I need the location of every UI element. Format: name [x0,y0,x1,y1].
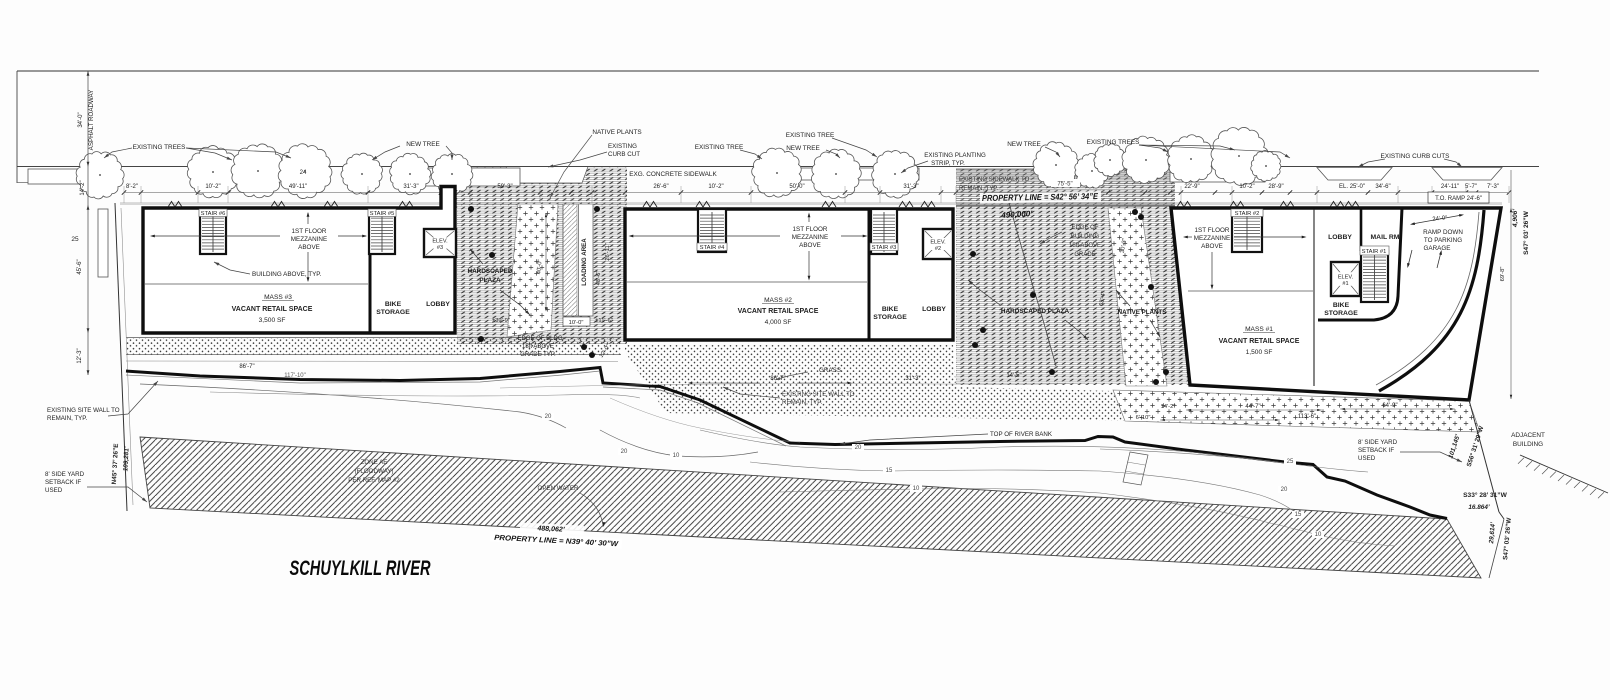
svg-text:40'-0": 40'-0" [536,259,543,274]
svg-text:49'-11": 49'-11" [289,184,307,190]
svg-text:7'-3": 7'-3" [1487,184,1499,190]
svg-text:LOBBY: LOBBY [922,306,946,313]
svg-text:24: 24 [300,170,307,176]
svg-text:14'-2": 14'-2" [1161,404,1176,410]
svg-text:GRADE: GRADE [1074,252,1095,258]
svg-text:22'-9": 22'-9" [1184,184,1199,190]
svg-text:GRASS: GRASS [819,367,841,374]
svg-text:EXISTING PLANTING: EXISTING PLANTING [924,152,986,159]
svg-text:EDGE OF BLDG: EDGE OF BLDG [517,336,562,342]
svg-text:BIKE: BIKE [882,306,899,313]
svg-text:NEW TREE: NEW TREE [406,141,440,148]
svg-text:MASS #1: MASS #1 [1245,326,1273,333]
svg-text:HARDSCAPED: HARDSCAPED [467,268,512,275]
svg-text:EXISTING TREE: EXISTING TREE [695,144,744,151]
svg-text:(FLOODWAY): (FLOODWAY) [355,468,394,475]
svg-text:117'-10": 117'-10" [284,373,306,379]
svg-text:25: 25 [1287,459,1294,465]
svg-text:GRADE TYP.: GRADE TYP. [520,352,556,358]
svg-text:PER REF. MAP #2: PER REF. MAP #2 [348,477,400,484]
svg-text:12'-3": 12'-3" [77,348,83,363]
svg-text:LOBBY: LOBBY [426,301,450,308]
svg-text:EXISTING SITE WALL TO: EXISTING SITE WALL TO [782,391,855,398]
svg-text:31'-3": 31'-3" [905,376,920,382]
svg-text:75'-5": 75'-5" [1057,182,1072,188]
svg-text:PROPERTY LINE = S42° 56’ 34”: PROPERTY LINE = S42° 56’ 34”E [982,191,1098,203]
svg-text:PLAZA: PLAZA [479,277,501,284]
svg-text:#2: #2 [935,246,941,252]
svg-text:TO PARKING: TO PARKING [1424,237,1462,244]
svg-text:1ST FLOOR: 1ST FLOOR [1195,227,1230,234]
svg-text:10: 10 [913,486,920,492]
svg-text:STORAGE: STORAGE [873,314,907,321]
svg-text:MAIL RM: MAIL RM [1371,234,1400,241]
svg-text:STAIR #6: STAIR #6 [201,211,226,217]
svg-text:T.O. RAMP 24'-6": T.O. RAMP 24'-6" [1435,196,1482,202]
svg-text:STAIR #1: STAIR #1 [1362,249,1387,255]
svg-text:REMAIN, TYP.: REMAIN, TYP. [959,186,998,192]
svg-text:59'-3": 59'-3" [497,184,512,190]
svg-text:10'-2": 10'-2" [708,184,723,190]
svg-text:4,906’: 4,906’ [1512,209,1519,229]
svg-text:18ft ABOVE: 18ft ABOVE [1069,243,1101,249]
svg-text:ELEV.: ELEV. [432,239,448,245]
svg-text:NATIVE PLANTS: NATIVE PLANTS [592,129,641,136]
svg-text:10'-2": 10'-2" [1239,184,1254,190]
svg-text:20: 20 [621,449,628,455]
svg-text:EXISTING TREES: EXISTING TREES [133,144,186,151]
svg-text:490,000’: 490,000’ [1000,209,1033,220]
svg-text:34'-6": 34'-6" [1375,184,1390,190]
svg-text:STORAGE: STORAGE [1324,310,1358,317]
svg-text:25: 25 [71,236,79,243]
svg-text:10: 10 [1315,532,1322,538]
svg-text:VACANT RETAIL SPACE: VACANT RETAIL SPACE [1219,338,1300,345]
svg-text:8' SIDE YARD: 8' SIDE YARD [1358,439,1398,446]
svg-text:TOP OF RIVER BANK: TOP OF RIVER BANK [990,431,1053,438]
svg-text:BUILDING: BUILDING [1513,441,1543,448]
svg-text:64'-9": 64'-9" [1382,403,1397,409]
svg-text:STAIR #2: STAIR #2 [1235,211,1260,217]
svg-text:MEZZANINE: MEZZANINE [792,234,828,241]
svg-text:SETBACK IF: SETBACK IF [45,479,81,486]
svg-text:LOBBY: LOBBY [1328,234,1352,241]
svg-text:18ft ABOVE: 18ft ABOVE [522,344,554,350]
svg-text:RAMP DOWN: RAMP DOWN [1423,229,1463,236]
svg-text:REMAIN, TYP.: REMAIN, TYP. [47,415,88,422]
svg-text:MEZZANINE: MEZZANINE [291,236,327,243]
svg-text:S47° 03’ 26”W: S47° 03’ 26”W [1522,210,1530,254]
svg-text:ASPHALT ROADWAY: ASPHALT ROADWAY [88,90,95,151]
svg-text:14'-2": 14'-2" [80,180,86,195]
svg-text:ADJACENT: ADJACENT [1511,432,1545,439]
svg-text:REMAIN, TYP.: REMAIN, TYP. [782,399,823,406]
svg-text:1,500 SF: 1,500 SF [1246,349,1273,356]
svg-text:26'-6": 26'-6" [653,184,668,190]
svg-text:SCHUYLKILL RIVER: SCHUYLKILL RIVER [290,557,432,580]
svg-text:6'-10": 6'-10" [1136,415,1151,421]
svg-text:±39'-9": ±39'-9" [492,318,510,324]
svg-text:34'-0": 34'-0" [78,112,84,127]
svg-text:113'-6": 113'-6" [1298,414,1316,420]
svg-text:VACANT RETAIL SPACE: VACANT RETAIL SPACE [232,306,313,313]
svg-text:VACANT RETAIL SPACE: VACANT RETAIL SPACE [738,308,819,315]
svg-text:ABOVE: ABOVE [799,242,821,249]
svg-text:28'-9": 28'-9" [1268,184,1283,190]
svg-text:BIKE: BIKE [1333,302,1350,309]
svg-text:BUILDING: BUILDING [1071,234,1100,240]
svg-text:48'-6": 48'-6" [596,271,602,286]
svg-text:26'-11": 26'-11" [605,243,611,261]
svg-text:NEW TREE: NEW TREE [786,145,820,152]
svg-text:EXISTING TREE: EXISTING TREE [786,132,835,139]
svg-text:109,281’: 109,281’ [122,446,130,471]
svg-text:50'-0": 50'-0" [789,184,804,190]
svg-text:HARDSCAPED PLAZA: HARDSCAPED PLAZA [1001,308,1070,315]
svg-text:ZONE AE: ZONE AE [361,459,388,466]
svg-text:15: 15 [1295,512,1302,518]
svg-text:MEZZANINE: MEZZANINE [1194,235,1230,242]
svg-text:STAIR #4: STAIR #4 [700,245,725,251]
svg-text:EXISTING SIDEWALK TO: EXISTING SIDEWALK TO [959,177,1030,183]
svg-text:20: 20 [545,414,552,420]
svg-text:20: 20 [1281,487,1288,493]
svg-text:EXISTING TREES: EXISTING TREES [1087,139,1140,146]
svg-text:4,000 SF: 4,000 SF [765,319,792,326]
svg-text:#1: #1 [1342,281,1348,287]
svg-text:10'-0": 10'-0" [569,320,584,326]
svg-text:EXISTING: EXISTING [608,143,637,150]
svg-text:EXISTING CURB CUTS: EXISTING CURB CUTS [1381,153,1450,160]
svg-text:86'-7": 86'-7" [239,364,254,370]
svg-text:EL. 25'-0": EL. 25'-0" [1339,184,1365,190]
svg-text:SETBACK IF: SETBACK IF [1358,447,1394,454]
svg-text:#3: #3 [437,245,443,251]
svg-text:USED: USED [1358,455,1376,462]
svg-text:EDGE OF: EDGE OF [1071,225,1098,231]
svg-text:USED: USED [45,487,63,494]
svg-text:S33° 28’ 31”W: S33° 28’ 31”W [1463,491,1507,499]
svg-text:24'-11": 24'-11" [1441,184,1459,190]
svg-text:44'-7": 44'-7" [1245,404,1260,410]
svg-text:1ST FLOOR: 1ST FLOOR [793,226,828,233]
svg-text:MASS #3: MASS #3 [264,294,292,301]
svg-text:MASS #2: MASS #2 [764,297,792,304]
svg-text:GARAGE: GARAGE [1424,245,1451,252]
svg-text:ABOVE: ABOVE [1201,243,1223,250]
svg-text:1ST FLOOR: 1ST FLOOR [292,228,327,235]
svg-text:69'-8": 69'-8" [1500,267,1506,282]
svg-text:BIKE: BIKE [385,301,402,308]
svg-text:ELEV.: ELEV. [930,240,946,246]
svg-text:10'-2": 10'-2" [205,184,220,190]
svg-text:15: 15 [886,468,893,474]
svg-text:EXG. CONCRETE SIDEWALK: EXG. CONCRETE SIDEWALK [629,171,717,178]
svg-text:LOADING AREA: LOADING AREA [581,238,588,286]
svg-text:STAIR #3: STAIR #3 [872,245,897,251]
svg-text:8'-2": 8'-2" [126,184,138,190]
svg-text:8' SIDE YARD: 8' SIDE YARD [45,471,85,478]
svg-text:20: 20 [855,445,862,451]
svg-text:EXISTING SITE WALL TO: EXISTING SITE WALL TO [47,407,120,414]
svg-text:14'-5": 14'-5" [1006,373,1021,379]
svg-text:ELEV.: ELEV. [1338,275,1354,281]
svg-text:10: 10 [673,453,680,459]
svg-text:45'-6": 45'-6" [77,259,83,274]
svg-text:BUILDING ABOVE, TYP.: BUILDING ABOVE, TYP. [252,271,322,278]
svg-text:NEW TREE: NEW TREE [1007,141,1041,148]
svg-text:CURB CUT: CURB CUT [608,151,640,158]
svg-text:31'-3": 31'-3" [403,184,418,190]
svg-text:NATIVE PLANTS: NATIVE PLANTS [1118,309,1167,316]
svg-text:3,500 SF: 3,500 SF [259,317,286,324]
svg-text:5'-7": 5'-7" [1465,184,1477,190]
svg-text:31'-3": 31'-3" [903,184,918,190]
svg-text:STAIR #5: STAIR #5 [370,211,395,217]
svg-text:OPEN WATER: OPEN WATER [538,485,579,492]
svg-text:STRIP, TYP.: STRIP, TYP. [931,160,965,167]
svg-text:ABOVE: ABOVE [298,244,320,251]
svg-text:16.864’: 16.864’ [1468,504,1490,511]
svg-text:STORAGE: STORAGE [376,309,410,316]
svg-text:±11'-6": ±11'-6" [595,318,613,324]
